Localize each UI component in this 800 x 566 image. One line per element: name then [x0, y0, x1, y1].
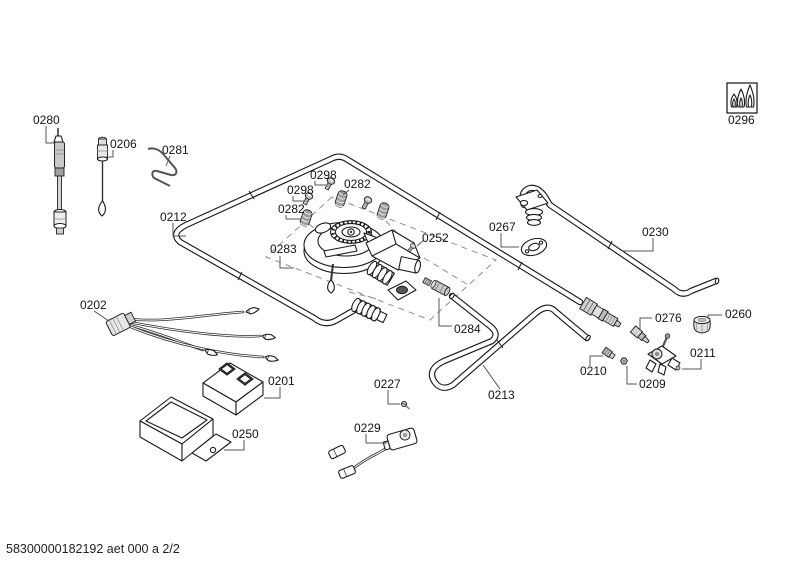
- part-label-0252: 0252: [422, 231, 449, 245]
- part-label-0213: 0213: [488, 388, 515, 402]
- part-label-0280: 0280: [33, 113, 60, 127]
- exploded-parts-diagram-page: 0280 0206 0281 0212 0298 0282 0298 0282 …: [0, 0, 800, 566]
- part-label-0282-a: 0282: [344, 177, 371, 191]
- part-label-0283: 0283: [270, 242, 297, 256]
- part-label-0267: 0267: [489, 220, 516, 234]
- part-0210-jet: [602, 347, 616, 359]
- part-label-0250: 0250: [232, 427, 259, 441]
- part-0229-microswitch: [328, 427, 418, 478]
- part-0230-inlet-pipe: [516, 188, 719, 294]
- part-label-0209: 0209: [639, 377, 666, 391]
- part-label-0201: 0201: [268, 374, 295, 388]
- part-label-0227: 0227: [374, 377, 401, 391]
- part-label-0230: 0230: [642, 225, 669, 239]
- part-labels: 0280 0206 0281 0212 0298 0282 0298 0282 …: [33, 113, 755, 441]
- part-0211-valve: [646, 334, 680, 375]
- part-0209-nut: [621, 358, 628, 364]
- part-0250-bracket: [140, 397, 231, 461]
- part-label-0211: 0211: [690, 346, 716, 360]
- leader-lines: [46, 126, 722, 450]
- part-label-0298-a: 0298: [310, 168, 337, 182]
- part-label-0282-b: 0282: [278, 202, 305, 216]
- part-label-0260: 0260: [725, 307, 752, 321]
- part-label-0298-b: 0298: [287, 183, 314, 197]
- part-0267-gasket: [519, 235, 549, 258]
- part-0284-connector: [423, 278, 451, 297]
- exploded-parts-diagram: 0280 0206 0281 0212 0298 0282 0298 0282 …: [0, 0, 800, 566]
- part-0202-cable-harness: [106, 307, 279, 363]
- part-0213-hairpin-tube: [432, 293, 591, 388]
- triple-flame-icon: [727, 83, 757, 113]
- part-0227-screw: [401, 401, 409, 409]
- part-0283-burner-assembly: [304, 221, 422, 325]
- part-label-0229: 0229: [354, 421, 381, 435]
- part-label-0281: 0281: [162, 143, 189, 157]
- document-code: 58300000182192 aet 000 a 2/2: [6, 542, 180, 556]
- part-label-0206: 0206: [110, 137, 137, 151]
- part-label-0210: 0210: [580, 364, 607, 378]
- flame-spreader: [331, 221, 372, 244]
- part-label-0276: 0276: [655, 311, 682, 325]
- part-0276-nozzle: [630, 326, 650, 345]
- part-label-0284: 0284: [454, 322, 481, 336]
- part-0206-pin: [98, 137, 108, 216]
- part-0201-ignition-module: [203, 363, 263, 415]
- pipe-end-fitting: [580, 297, 624, 330]
- part-label-0296: 0296: [728, 113, 755, 127]
- part-0280-electrode: [54, 128, 66, 234]
- part-label-0212: 0212: [160, 210, 187, 224]
- part-label-0202: 0202: [80, 298, 107, 312]
